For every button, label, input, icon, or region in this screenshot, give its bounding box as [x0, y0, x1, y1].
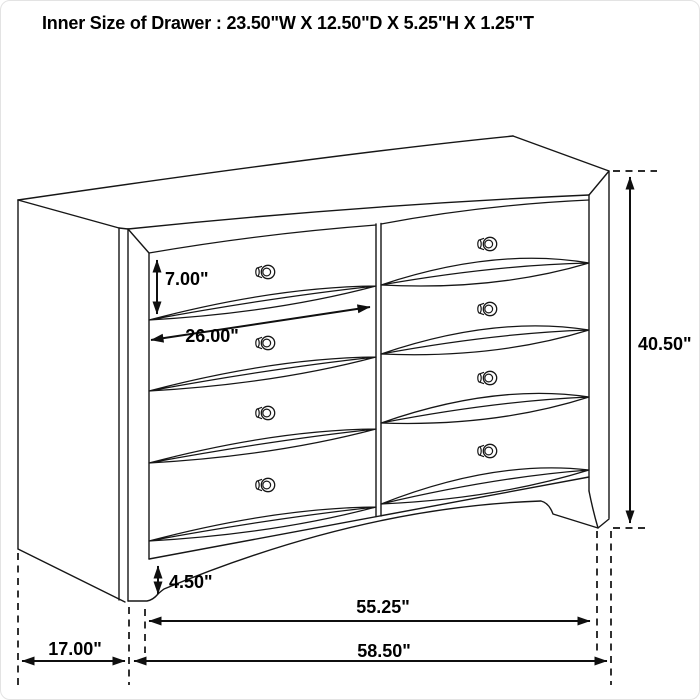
drawer-top-edge-left [149, 225, 376, 253]
dimension-labels: 7.00" 26.00" 40.50" 4.50" 55.25" 58.50" … [48, 269, 691, 661]
drawer-knob-icon [478, 371, 497, 384]
drawer-knob-icon [256, 406, 275, 419]
base-rail-top-edge [149, 477, 589, 559]
drawer-knob-icon [256, 265, 275, 278]
right-bracket-foot [589, 491, 598, 528]
drawer-knob-icon [478, 237, 497, 250]
dresser-top-panel [18, 136, 609, 229]
dresser-side-panel [18, 200, 128, 602]
drawer-separator [381, 393, 589, 423]
drawer-separator [149, 507, 376, 541]
dimension-label-base-height: 4.50" [169, 572, 213, 592]
drawer-separator [381, 326, 589, 355]
drawer-separator [381, 468, 589, 504]
drawer-knob-icon [256, 478, 275, 491]
drawer-top-edge-right [381, 200, 589, 224]
screenshot-page: Inner Size of Drawer : 23.50"W X 12.50"D… [0, 0, 700, 700]
drawer-separator [149, 286, 376, 320]
dimension-diagram: 7.00" 26.00" 40.50" 4.50" 55.25" 58.50" … [1, 1, 700, 700]
dimension-label-drawer-height: 7.00" [165, 269, 209, 289]
dimension-label-overall-width: 58.50" [357, 641, 411, 661]
dimension-label-drawer-width: 26.00" [185, 326, 239, 346]
dresser-drawing [18, 136, 609, 602]
drawer-separator [381, 258, 589, 286]
drawer-separator [149, 357, 376, 391]
extension-lines [18, 171, 657, 685]
dimension-label-case-width: 55.25" [356, 597, 410, 617]
dimension-arrows [22, 177, 630, 661]
drawer-separator [149, 429, 376, 463]
drawer-knob-icon [478, 302, 497, 315]
drawer-knob-icon [256, 336, 275, 349]
drawer-knob-icon [478, 444, 497, 457]
dimension-label-overall-height: 40.50" [638, 334, 692, 354]
dimension-label-depth: 17.00" [48, 639, 102, 659]
